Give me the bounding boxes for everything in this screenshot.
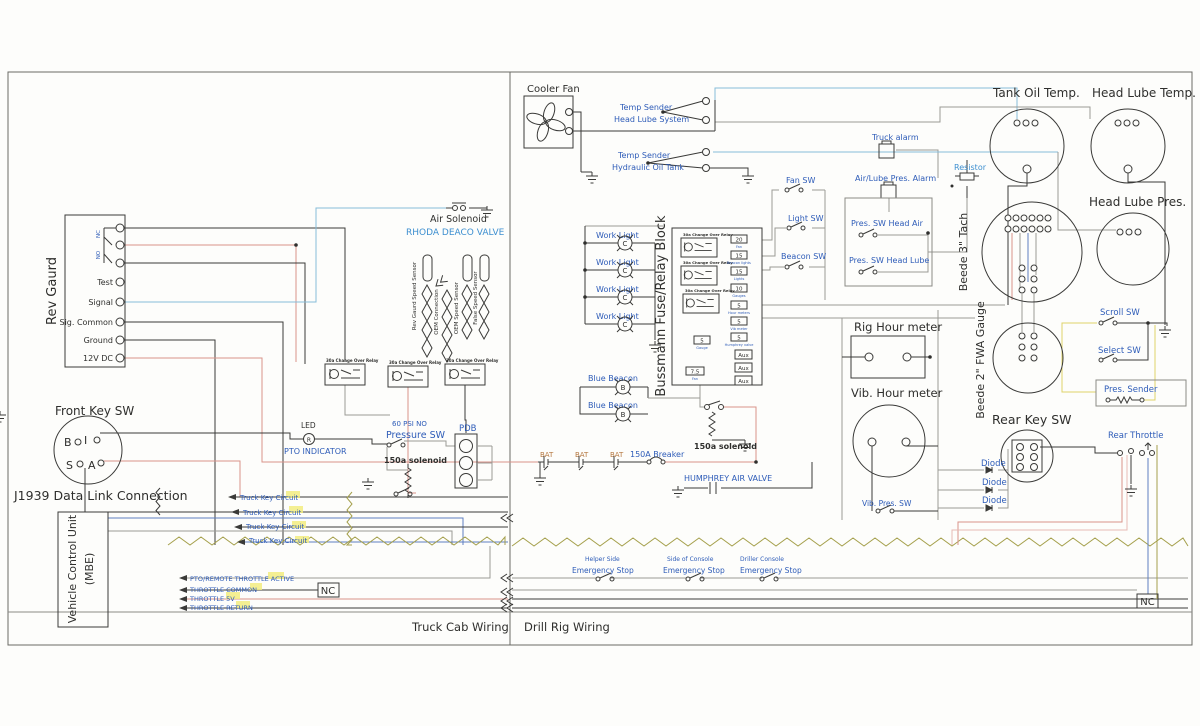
wire	[1022, 294, 1034, 332]
front-key-circle	[54, 416, 122, 484]
humphrey-valve: HUMPHREY AIR VALVE	[684, 474, 772, 494]
led-symbol: R	[307, 437, 311, 444]
throttle-return-label: THROTTLE RETURN	[189, 604, 253, 612]
rev-guard-signal: Signal	[88, 298, 113, 307]
select-sw-label: Select SW	[1098, 346, 1141, 356]
front-key-title: Front Key SW	[55, 404, 134, 418]
wiring-truck-side	[85, 208, 538, 608]
tach-title: Beede 3" Tach	[957, 213, 970, 292]
fuse-3-label: Lights	[734, 277, 745, 281]
rev-guard-no: NO	[96, 250, 102, 259]
pdb: PDB	[455, 424, 492, 488]
wire	[1058, 152, 1116, 230]
head-lube-temp-title: Head Lube Temp.	[1092, 86, 1196, 100]
temp2-line2: Hydraulic Oil Tank	[612, 163, 684, 172]
changeover-relays: 30a Change Over Relay 30a Change Over Re…	[325, 358, 499, 387]
air-solenoid-subtitle: RHODA DEACO VALVE	[406, 228, 505, 238]
wire	[120, 208, 446, 302]
fwa-gauge: Beede 2" FWA Gauge	[974, 301, 1063, 419]
sensor-false-speed-label: False Speed Sensor	[473, 271, 479, 325]
work-light-1-symbol: C	[623, 240, 628, 248]
diodes: Diode Diode Diode	[981, 459, 1007, 511]
estop-3-location: Driller Console	[740, 556, 784, 563]
relay2-label: 30a Change Over Relay	[389, 360, 442, 365]
pres-sw-head-air-label: Pres. SW Head Air	[851, 219, 924, 228]
front-key-s: S	[66, 459, 73, 472]
estop-3-label: Emergency Stop	[740, 566, 802, 575]
battery-bank: BAT BAT BAT 150A Breaker	[538, 450, 685, 470]
hour-meters: Rig Hour meter Vib. Hour meter Vib. Pres…	[851, 320, 943, 513]
fuse-2-value: 15	[736, 254, 743, 260]
fan-sw-label: Fan SW	[786, 176, 815, 185]
air-solenoid-section: Air Solenoid RHODA DEACO VALVE Rev Gaurd…	[406, 203, 505, 362]
work-light-2-symbol: C	[623, 267, 628, 275]
nc-box-left-label: NC	[321, 586, 335, 597]
aux-fuses: Aux Aux Aux	[735, 350, 752, 385]
resistor-label: Resistor	[954, 163, 987, 172]
wiring-diagram: Truck Cab Wiring Drill Rig Wiring	[0, 0, 1200, 726]
solenoid-150a-left: 150a solenoid	[384, 456, 447, 498]
fwa-title: Beede 2" FWA Gauge	[974, 301, 987, 419]
block-relay2-label: 30a Change Over Relay	[683, 260, 733, 265]
ground-symbols	[0, 172, 1171, 497]
front-key-i: I	[84, 434, 87, 447]
pdb-label: PDB	[459, 424, 477, 434]
temp1-line2: Head Lube System	[614, 115, 689, 124]
relay1-label: 30a Change Over Relay	[326, 358, 379, 363]
beacon-1-label: Blue Beacon	[588, 374, 638, 383]
front-key-switch: Front Key SW B I S A	[54, 404, 134, 484]
switch-out-bus	[809, 190, 825, 300]
truck-key-3: Truck Key Circuit	[245, 523, 304, 531]
bat-1-label: BAT	[540, 451, 554, 459]
led-title: LED	[301, 421, 316, 430]
beacon-2-label: Blue Beacon	[588, 401, 638, 410]
wire	[186, 546, 490, 578]
rev-guard: Rev Gaurd NC NO Test Signal Sig. Common …	[45, 215, 125, 367]
solenoid-lever	[708, 401, 720, 405]
pressure-switch: 60 PSI NO Pressure SW	[386, 420, 446, 447]
aux-3: Aux	[738, 379, 749, 385]
block-relay3-label: 30a Change Over Relay	[685, 288, 735, 293]
estop-1-location: Helper Side	[585, 556, 620, 563]
emergency-stops: Helper Side Emergency Stop Side of Conso…	[572, 556, 802, 581]
firewall-sawtooth-left	[168, 537, 505, 545]
work-lights: Work Light C Work Light C Work Light C W…	[596, 231, 639, 332]
wire	[715, 88, 1017, 119]
wire	[100, 433, 303, 439]
fuse-5-value: 5	[737, 304, 741, 310]
tank-oil-temp-title: Tank Oil Temp.	[992, 86, 1080, 100]
fuse-7-label: Humphrey valve	[725, 343, 754, 347]
sensor-oem-speed-label: OEM Speed Sensor	[454, 281, 460, 334]
wire	[762, 267, 784, 270]
worklight-bus-left	[585, 226, 618, 324]
temp2-line1: Temp Sender	[617, 151, 671, 160]
rev-guard-nc: NC	[96, 230, 102, 238]
rev-guard-sig-common: Sig. Common	[60, 318, 114, 327]
fuse-extra75-label: Fan	[692, 377, 698, 381]
air-solenoid-title: Air Solenoid	[430, 214, 487, 225]
fuse-2-label: Beacon lights	[727, 261, 751, 265]
hourmeter-bus	[842, 310, 938, 520]
estop-2-location: Side of Console	[667, 556, 714, 563]
wire	[120, 228, 345, 362]
rear-throttle: Rear Throttle	[1108, 431, 1164, 456]
aux-2: Aux	[738, 366, 749, 372]
wire	[404, 441, 455, 446]
throttle-common-label: THROTTLE COMMON	[189, 586, 257, 594]
throttle-5v-label: THROTTLE 5V	[189, 595, 235, 603]
beacon-2-symbol: B	[621, 411, 626, 419]
wiring-diagram-page: Truck Cab Wiring Drill Rig Wiring	[0, 0, 1200, 726]
vcu-line2: (MBE)	[83, 553, 96, 586]
estop-2-label: Emergency Stop	[663, 566, 725, 575]
wire	[120, 340, 215, 545]
solenoid-150a-right: 150a solenoid	[694, 401, 757, 451]
work-light-3-symbol: C	[623, 294, 628, 302]
firewall-sawtooth-right	[512, 538, 1188, 546]
rear-key-title: Rear Key SW	[992, 412, 1072, 427]
head-lube-pres-title: Head Lube Pres.	[1089, 195, 1186, 209]
rev-guard-title: Rev Gaurd	[45, 257, 60, 325]
wire	[120, 263, 305, 364]
fuse-6-label: Vib meter	[730, 327, 748, 331]
throttle-active-label: PTO/REMOTE THROTTLE ACTIVE	[190, 575, 294, 583]
vib-hour-meter-title: Vib. Hour meter	[851, 386, 943, 400]
nc-box-right-group: NC	[1137, 594, 1158, 608]
relay3-label: 30a Change Over Relay	[446, 358, 499, 363]
humphrey-label: HUMPHREY AIR VALVE	[684, 474, 772, 483]
wire	[315, 439, 387, 444]
wire	[700, 385, 705, 407]
temp1-line1: Temp Sender	[619, 103, 673, 112]
light-sw-label: Light SW	[788, 214, 824, 223]
fuse-3-value: 15	[736, 270, 743, 276]
pdb-leads	[477, 446, 492, 480]
fuse-7-value: 5	[737, 336, 741, 342]
wire	[1008, 173, 1027, 305]
meter-leads	[842, 357, 938, 511]
fuse-6-value: 5	[737, 320, 741, 326]
fuse-4-value: 10	[736, 287, 743, 293]
air-lube-alarm-label: Air/Lube Pres. Alarm	[855, 174, 936, 183]
truck-cab-wiring-label: Truck Cab Wiring	[411, 620, 509, 634]
solenoid-150a-left-label: 150a solenoid	[384, 456, 447, 465]
fuse-extra5-label: Gauge	[696, 346, 707, 350]
truck-alarm-label: Truck alarm	[871, 133, 919, 142]
pres-sw-head-lube-label: Pres. SW Head Lube	[849, 256, 929, 265]
wire	[762, 190, 779, 240]
pto-indicator-label: PTO INDICATOR	[284, 447, 347, 456]
sensor-revguard-label: Rev Gaurd Speed Sensor	[412, 261, 418, 330]
aux-1: Aux	[738, 353, 749, 359]
estop-1-label: Emergency Stop	[572, 566, 634, 575]
truck-key-1: Truck Key Circuit	[239, 494, 298, 502]
fuse-1-value: 20	[736, 238, 743, 244]
cooler-fan-label: Cooler Fan	[527, 84, 580, 95]
vcu-section: J1939 Data Link Connection Vehicle Contr…	[13, 488, 188, 627]
fuse-block-title: Bussmann Fuse/Relay Block	[654, 215, 669, 397]
nc-box-right-label: NC	[1140, 597, 1154, 608]
rev-guard-12v: 12V DC	[83, 354, 113, 363]
wire	[952, 455, 1127, 545]
pressure-sw-label: Pressure SW	[386, 430, 446, 441]
rev-guard-ground: Ground	[84, 336, 113, 345]
relay-contacts	[104, 228, 116, 263]
work-light-4-symbol: C	[623, 321, 628, 329]
fuse-5-label: Hour meters	[728, 311, 750, 315]
blue-beacons: Blue Beacon B Blue Beacon B	[588, 374, 638, 422]
fuse-extra5-value: 5	[700, 339, 704, 345]
drill-rig-wiring-label: Drill Rig Wiring	[524, 620, 610, 634]
bulkhead-chevrons	[433, 275, 513, 612]
pres-sender-label: Pres. Sender	[1104, 385, 1158, 395]
front-key-b: B	[64, 436, 72, 449]
solenoid-150a-right-label: 150a solenoid	[694, 442, 757, 451]
pressure-sw-rating: 60 PSI NO	[392, 420, 427, 428]
sensor-oem-connection-label: OEM Connection	[434, 289, 440, 335]
block-relay1-label: 30a Change Over Relay	[683, 232, 733, 237]
fuse-extra75-value: 7.5	[691, 370, 700, 376]
diode-1-label: Diode	[981, 459, 1006, 469]
rig-hour-meter-title: Rig Hour meter	[854, 320, 942, 334]
vcu-line1: Vehicle Control Unit	[66, 514, 79, 623]
fuse-4-label: Gauges	[732, 294, 745, 298]
scroll-sw-label: Scroll SW	[1100, 308, 1140, 318]
beacon-sw-label: Beacon SW	[781, 252, 826, 261]
throttle-wiper	[1145, 443, 1151, 450]
wire	[1062, 323, 1097, 392]
fuse-relay-block: Bussmann Fuse/Relay Block 30a Change Ove…	[654, 215, 762, 397]
pres-sender-resistor	[1108, 397, 1142, 403]
rear-throttle-label: Rear Throttle	[1108, 431, 1164, 441]
valve-plates	[710, 482, 716, 494]
truck-key-2: Truck Key Circuit	[242, 509, 301, 517]
resistor: Resistor	[951, 163, 987, 188]
beacon-1-symbol: B	[621, 384, 626, 392]
truck-key-4: Truck Key Circuit	[248, 537, 307, 545]
bat-2-label: BAT	[575, 451, 589, 459]
j1939-label: J1939 Data Link Connection	[13, 488, 188, 503]
front-key-a: A	[88, 459, 96, 472]
rev-guard-test: Test	[96, 278, 113, 287]
wire	[345, 385, 390, 415]
alarms: Truck alarm Air/Lube Pres. Alarm	[855, 133, 936, 198]
gauges: Tank Oil Temp. Head Lube Temp. Head Lube…	[957, 86, 1196, 419]
fuse-1-label: Fan	[736, 245, 742, 249]
bat-3-label: BAT	[610, 451, 624, 459]
